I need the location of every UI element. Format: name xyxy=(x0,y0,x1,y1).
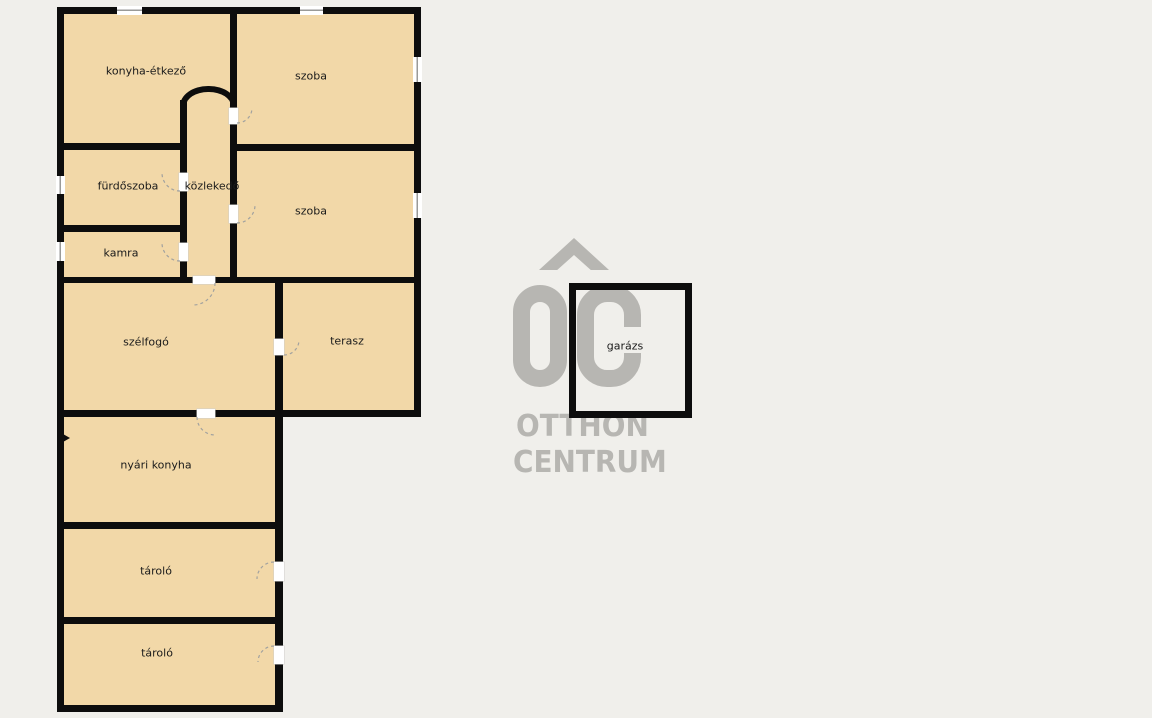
room-label-konyha-etkezo: konyha-étkező xyxy=(106,65,186,78)
room-label-szoba-also: szoba xyxy=(295,205,327,218)
floor-plan-image: OTTHON CENTRUM xyxy=(0,0,1152,718)
room-label-furdoszoba: fürdőszoba xyxy=(98,180,159,193)
room-label-garazs: garázs xyxy=(607,340,644,353)
room-label-kozlekedo: közlekedő xyxy=(185,180,240,193)
room-label-szelfogo: szélfogó xyxy=(123,336,169,349)
room-label-kamra: kamra xyxy=(104,247,139,260)
room-label-szoba-felso: szoba xyxy=(295,70,327,83)
room-label-nyari-konyha: nyári konyha xyxy=(120,459,191,472)
room-label-tarolo-2: tároló xyxy=(141,647,173,660)
room-label-terasz: terasz xyxy=(330,335,364,348)
room-label-tarolo-1: tároló xyxy=(140,565,172,578)
